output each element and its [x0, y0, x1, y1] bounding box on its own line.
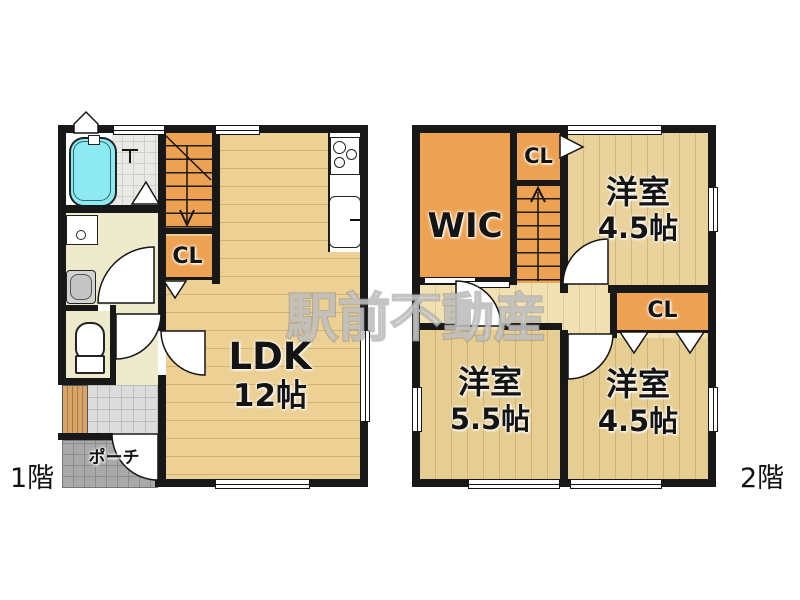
floor-plan-canvas: LDK 12帖 CL ポーチ 1階 WIC CL 洋室 4.5帖 CL 洋室 5…	[0, 0, 800, 600]
room-ne-label: 洋室	[568, 174, 708, 210]
bath-door-triangle	[132, 182, 159, 204]
closet-2f-side-door-triangle-2	[676, 332, 704, 353]
floor2-label: 2階	[740, 456, 784, 495]
porch-label: ポーチ	[68, 448, 160, 468]
closet-1f-door-triangle	[164, 281, 186, 298]
closet-2f-top-label: CL	[517, 142, 560, 170]
room-sw-label: 洋室	[420, 364, 560, 400]
room-ne-size-label: 4.5帖	[568, 212, 708, 244]
washroom-door-arc	[98, 247, 154, 303]
ldk-door-arc	[161, 331, 205, 375]
vent-symbol	[74, 112, 98, 133]
closet-2f-side-label: CL	[617, 296, 708, 326]
room-se-label: 洋室	[568, 366, 708, 402]
floor1-label: 1階	[10, 456, 54, 495]
wic-label: WIC	[420, 206, 510, 246]
closet-2f-top-door-triangle	[560, 135, 583, 158]
shower-icon	[122, 150, 138, 163]
toilet-door-arc	[116, 314, 161, 359]
watermark-text: 駅前不動産	[286, 276, 566, 338]
room-sw-size-label: 5.5帖	[420, 402, 560, 436]
closet-1f-label: CL	[163, 243, 212, 271]
room-se-size-label: 4.5帖	[568, 404, 708, 438]
room-ne-door-arc	[563, 239, 608, 284]
ldk-size-label: 12帖	[200, 378, 340, 414]
closet-2f-side-door-triangle-1	[620, 332, 648, 353]
